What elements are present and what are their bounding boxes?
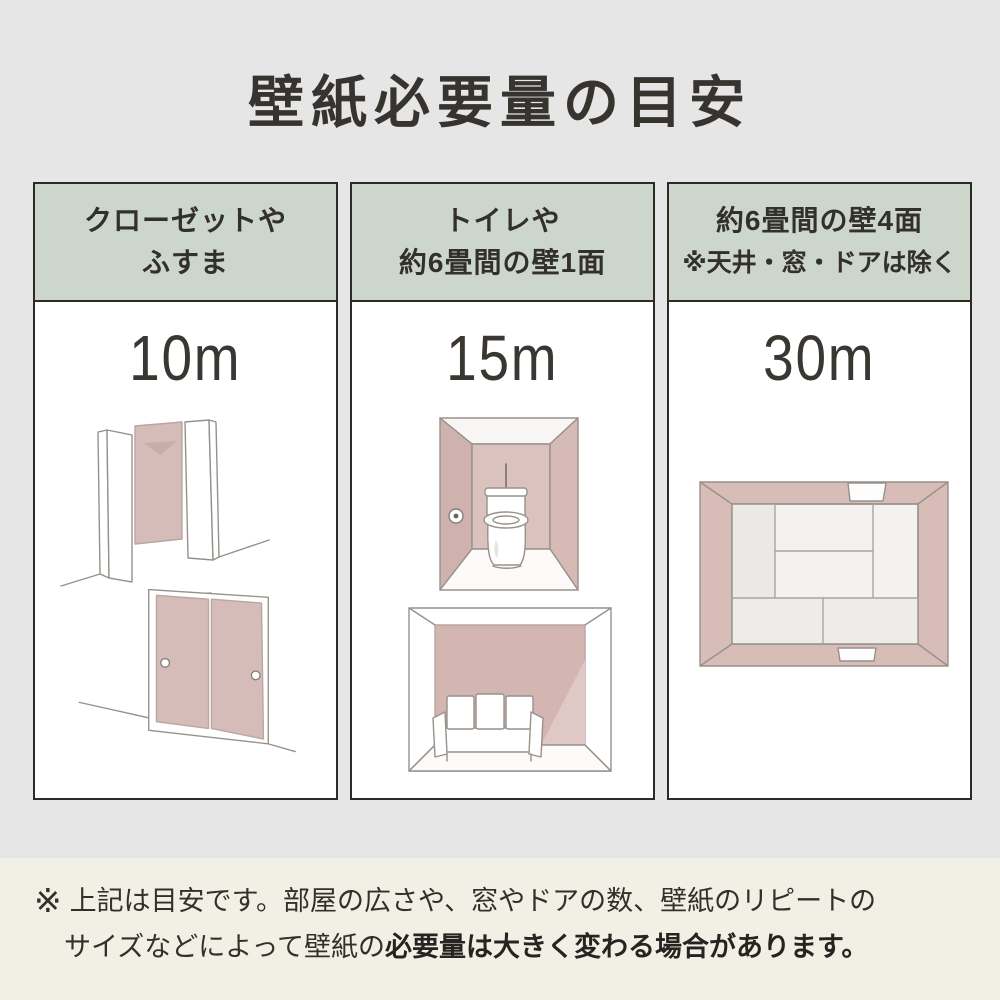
reference-mark: ※ (34, 882, 62, 919)
toilet-room-illustration (400, 400, 610, 600)
card-header-closet-fusuma: クローゼットや ふすま (35, 184, 336, 302)
guide-card-closet-fusuma: クローゼットや ふすま 10m (33, 182, 338, 800)
card-header-toilet: トイレや 約6畳間の壁1面 (352, 184, 653, 302)
footnote-line-1: ※上記は目安です。部屋の広さや、窓やドアの数、壁紙のリピートの (34, 878, 980, 924)
sofa-room-illustration (395, 590, 625, 790)
card-header-four-walls: 約6畳間の壁4面 ※天井・窓・ドアは除く (669, 184, 970, 302)
header-line-2: 約6畳間の壁1面 (399, 242, 606, 284)
required-length-four-walls: 30m (669, 302, 970, 414)
footnote: ※上記は目安です。部屋の広さや、窓やドアの数、壁紙のリピートの サイズなどによっ… (0, 858, 1000, 1000)
header-line-1: トイレや (444, 200, 560, 242)
header-line-1: 約6畳間の壁4面 (716, 200, 923, 242)
required-length-toilet: 15m (352, 302, 653, 414)
footnote-line-2: サイズなどによって壁紙の必要量は大きく変わる場合があります。 (64, 924, 980, 970)
header-line-1: クローゼットや (84, 200, 287, 242)
closet-illustration (41, 410, 333, 602)
guide-columns: クローゼットや ふすま 10m (33, 182, 972, 800)
wallpaper-guide-infographic: 壁紙必要量の目安 クローゼットや ふすま 10m (0, 0, 1000, 1000)
required-length-closet: 10m (35, 302, 336, 414)
footnote-emphasis: 必要量は大きく変わる場合があります。 (385, 932, 868, 962)
page-title: 壁紙必要量の目安 (0, 58, 1000, 139)
guide-card-four-walls: 約6畳間の壁4面 ※天井・窓・ドアは除く 30m (667, 182, 972, 800)
header-line-2: ふすま (142, 242, 229, 284)
tatami-room-overhead-illustration (680, 440, 970, 700)
header-line-2: ※天井・窓・ドアは除く (682, 242, 956, 284)
guide-card-toilet-one-wall: トイレや 約6畳間の壁1面 15m (350, 182, 655, 800)
fusuma-illustration (60, 576, 330, 769)
